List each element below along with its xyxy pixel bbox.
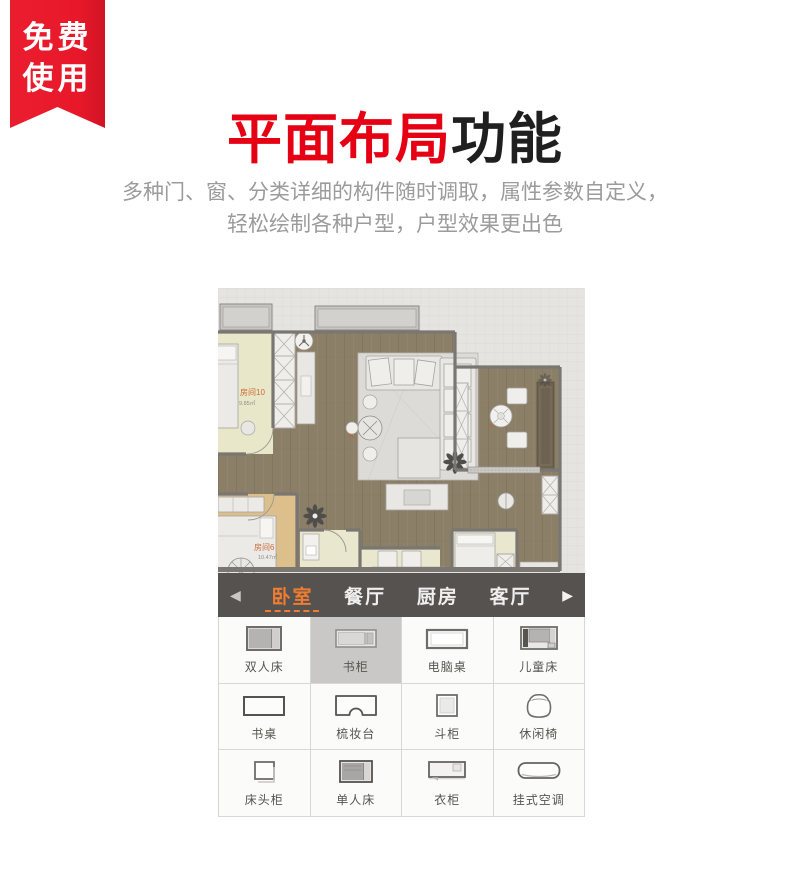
page-title: 平面布局功能 — [0, 94, 790, 174]
furniture-item-label: 单人床 — [336, 791, 375, 808]
room-area: 10.47㎡ — [258, 553, 278, 561]
title-highlight: 平面布局 — [227, 108, 451, 170]
furniture-item-6[interactable]: 斗柜 — [402, 684, 493, 750]
closet-strip — [273, 332, 315, 428]
computer-desk-icon — [425, 624, 469, 654]
furniture-item-label: 电脑桌 — [428, 658, 467, 675]
page: 免费 使用 平面布局功能 多种门、窗、分类详细的构件随时调取，属性参数自定义， … — [0, 0, 790, 896]
furniture-item-9[interactable]: 单人床 — [311, 750, 402, 816]
furniture-item-label: 休闲椅 — [519, 725, 558, 742]
floorplan-image: 房间10 9.85㎡ 房间6 10.47㎡ — [218, 288, 585, 573]
furniture-item-1[interactable]: 书柜 — [311, 617, 402, 683]
furniture-item-label: 书桌 — [251, 725, 277, 742]
room-label: 房间6 — [254, 542, 275, 552]
app-screenshot: 房间10 9.85㎡ 房间6 10.47㎡ ◀ 卧室餐厅厨房客厅▶ 双人床 书柜… — [218, 288, 585, 817]
furniture-item-label: 书柜 — [343, 658, 369, 675]
plant-icon — [303, 504, 327, 528]
double-bed-icon — [242, 624, 286, 654]
furniture-item-8[interactable]: 床头柜 — [219, 750, 310, 816]
ribbon-text-line2: 使用 — [10, 58, 105, 99]
room-label: 房间10 — [240, 387, 265, 397]
furniture-item-label: 挂式空调 — [513, 791, 565, 808]
furniture-item-label: 衣柜 — [434, 791, 460, 808]
furniture-item-7[interactable]: 休闲椅 — [494, 684, 585, 750]
furniture-item-label: 儿童床 — [519, 658, 558, 675]
next-category-arrow-icon[interactable]: ▶ — [562, 587, 573, 604]
category-tab-2[interactable]: 厨房 — [417, 573, 459, 617]
furniture-item-label: 床头柜 — [245, 791, 284, 808]
furniture-item-10[interactable]: 衣柜 — [402, 750, 493, 816]
furniture-item-0[interactable]: 双人床 — [219, 617, 310, 683]
room-area: 9.85㎡ — [239, 399, 256, 407]
wall-ac-icon — [517, 757, 561, 787]
plant-icon — [538, 373, 552, 387]
furniture-item-11[interactable]: 挂式空调 — [494, 750, 585, 816]
ribbon-text-line1: 免费 — [10, 17, 105, 58]
lounge-chair-icon — [517, 691, 561, 721]
furniture-grid: 双人床 书柜 电脑桌 儿童床 书桌 梳妆台 斗柜 休闲椅 床头柜 单人床 衣柜 … — [218, 617, 585, 817]
furniture-item-3[interactable]: 儿童床 — [494, 617, 585, 683]
bathroom — [303, 534, 319, 560]
wardrobe-icon — [425, 757, 469, 787]
category-tabbar: ◀ 卧室餐厅厨房客厅▶ — [218, 573, 585, 617]
category-tab-0[interactable]: 卧室 — [271, 573, 313, 617]
category-tab-1[interactable]: 餐厅 — [344, 573, 386, 617]
furniture-item-label: 双人床 — [245, 658, 284, 675]
subtitle: 多种门、窗、分类详细的构件随时调取，属性参数自定义， 轻松绘制各种户型，户型效果… — [0, 177, 790, 241]
chest-icon — [425, 691, 469, 721]
dining-cabinet — [537, 382, 554, 470]
nightstand-icon — [242, 757, 286, 787]
subtitle-line2: 轻松绘制各种户型，户型效果更出色 — [0, 209, 790, 241]
subtitle-line1: 多种门、窗、分类详细的构件随时调取，属性参数自定义， — [0, 177, 790, 209]
title-rest: 功能 — [451, 108, 563, 170]
prev-category-arrow-icon[interactable]: ◀ — [230, 587, 241, 604]
balcony-windows — [220, 304, 419, 330]
furniture-item-label: 斗柜 — [434, 725, 460, 742]
single-bed-icon — [334, 757, 378, 787]
furniture-item-2[interactable]: 电脑桌 — [402, 617, 493, 683]
dressing-table-icon — [334, 691, 378, 721]
desk-icon — [242, 691, 286, 721]
furniture-item-4[interactable]: 书桌 — [219, 684, 310, 750]
kids-bed-icon — [517, 624, 561, 654]
furniture-item-label: 梳妆台 — [336, 725, 375, 742]
furniture-item-5[interactable]: 梳妆台 — [311, 684, 402, 750]
category-tab-3[interactable]: 客厅 — [490, 573, 532, 617]
bookcase-icon — [334, 624, 378, 654]
